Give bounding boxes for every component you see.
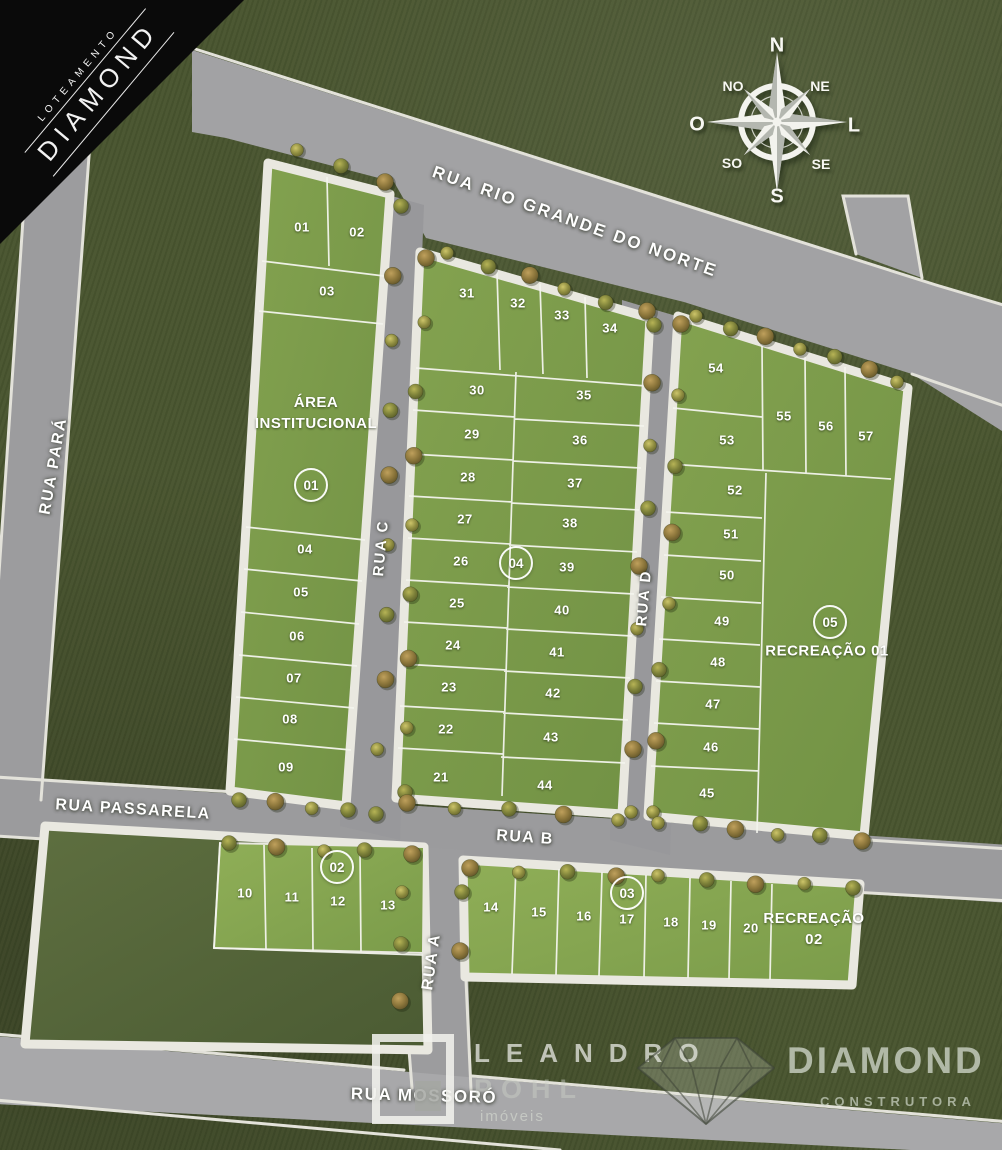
tree-icon — [608, 868, 625, 885]
tree-icon — [357, 843, 372, 858]
tree-icon — [385, 334, 398, 347]
tree-icon — [384, 267, 401, 284]
builder-tagline: CONSTRUTORA — [820, 1094, 976, 1109]
tree-icon — [827, 349, 842, 364]
tree-icon — [400, 650, 417, 667]
tree-icon — [399, 795, 416, 812]
tree-icon — [555, 806, 572, 823]
tree-icon — [757, 328, 774, 345]
tree-icon — [673, 316, 690, 333]
tree-icon — [891, 376, 904, 389]
tree-icon — [625, 806, 638, 819]
tree-icon — [644, 439, 657, 452]
tree-icon — [612, 814, 625, 827]
tree-icon — [663, 597, 676, 610]
tree-icon — [318, 845, 331, 858]
tree-icon — [664, 524, 681, 541]
tree-icon — [404, 846, 421, 863]
tree-icon — [418, 250, 435, 267]
tree-icon — [631, 558, 648, 575]
tree-icon — [455, 885, 470, 900]
tree-icon — [267, 793, 284, 810]
tree-icon — [672, 389, 685, 402]
tree-icon — [652, 662, 667, 677]
tree-icon — [512, 866, 525, 879]
tree-icon — [305, 802, 318, 815]
tree-icon — [441, 247, 454, 260]
tree-icon — [812, 828, 827, 843]
block-quadra-05 — [648, 316, 908, 836]
tree-icon — [798, 877, 811, 890]
map-graphics — [0, 0, 1002, 1150]
tree-icon — [747, 876, 764, 893]
tree-icon — [394, 199, 409, 214]
tree-icon — [693, 816, 708, 831]
tree-icon — [291, 144, 304, 157]
tree-icon — [377, 174, 394, 191]
tree-icon — [598, 295, 613, 310]
tree-icon — [394, 937, 409, 952]
tree-icon — [369, 807, 384, 822]
tree-icon — [381, 538, 394, 551]
tree-icon — [644, 374, 661, 391]
tree-icon — [794, 343, 807, 356]
tree-icon — [396, 886, 409, 899]
builder-watermark: DIAMOND CONSTRUTORA — [622, 1022, 1002, 1147]
tree-icon — [558, 282, 571, 295]
tree-icon — [625, 741, 642, 758]
block-quadra-02-lots — [214, 843, 424, 953]
tree-icon — [400, 721, 413, 734]
tree-icon — [222, 836, 237, 851]
tree-icon — [861, 361, 878, 378]
tree-icon — [392, 993, 409, 1010]
tree-icon — [408, 384, 423, 399]
tree-icon — [631, 622, 644, 635]
tree-icon — [341, 803, 356, 818]
tree-icon — [452, 943, 469, 960]
site-plan-map: RUA RIO GRANDE DO NORTE RUA PARÁ RUA C R… — [0, 0, 1002, 1150]
tree-icon — [334, 159, 349, 174]
realtor-tagline: imóveis — [480, 1108, 545, 1125]
realtor-name-line2: POHL — [474, 1074, 585, 1105]
tree-icon — [652, 869, 665, 882]
tree-icon — [383, 403, 398, 418]
realtor-logo-icon — [372, 1034, 454, 1124]
tree-icon — [481, 259, 496, 274]
tree-icon — [403, 587, 418, 602]
tree-icon — [232, 793, 247, 808]
tree-icon — [371, 743, 384, 756]
tree-icon — [502, 802, 517, 817]
tree-icon — [639, 303, 656, 320]
tree-icon — [690, 310, 703, 323]
tree-icon — [771, 828, 784, 841]
tree-icon — [521, 267, 538, 284]
tree-icon — [448, 802, 461, 815]
tree-icon — [268, 839, 285, 856]
builder-name: DIAMOND — [787, 1040, 985, 1082]
tree-icon — [377, 671, 394, 688]
tree-icon — [648, 732, 665, 749]
tree-icon — [418, 316, 431, 329]
block-quadra-04 — [396, 252, 650, 814]
tree-icon — [560, 864, 575, 879]
tree-icon — [652, 817, 665, 830]
tree-icon — [405, 447, 422, 464]
tree-icon — [647, 318, 662, 333]
compass-rose-icon — [707, 52, 847, 192]
tree-icon — [854, 833, 871, 850]
tree-icon — [723, 321, 738, 336]
diamond-icon — [630, 1030, 782, 1130]
tree-icon — [379, 607, 394, 622]
tree-icon — [846, 881, 861, 896]
tree-icon — [406, 519, 419, 532]
tree-icon — [699, 872, 714, 887]
tree-icon — [668, 459, 683, 474]
tree-icon — [462, 860, 479, 877]
tree-icon — [641, 501, 656, 516]
tree-icon — [381, 467, 398, 484]
tree-icon — [628, 679, 643, 694]
tree-icon — [727, 821, 744, 838]
